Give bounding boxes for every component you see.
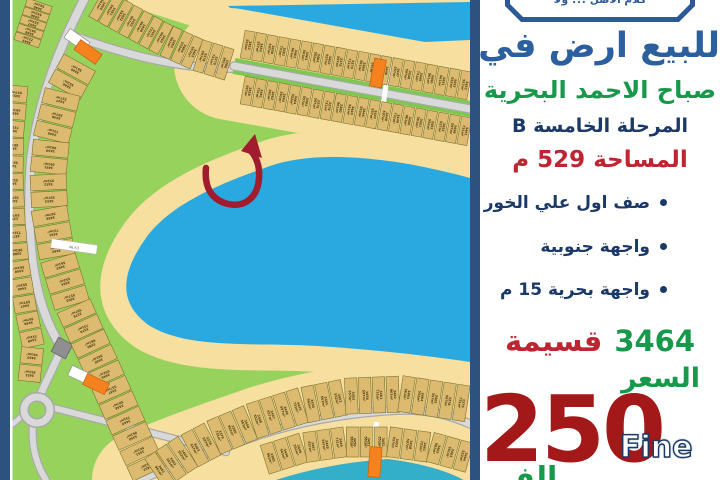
bullet-icon — [660, 199, 667, 206]
bullet-icon — [660, 286, 667, 293]
area-label: المساحة 529 م — [480, 147, 720, 173]
details-panel: كلام الاصل !!! ولا للبيع ارض في صباح الا… — [480, 0, 720, 480]
subdivision-map: 3440561m²3446552m²3447557m²3448597m²3449… — [0, 0, 480, 480]
plot-number-line: قسيمة 3464 — [480, 324, 720, 358]
bullet-icon — [660, 243, 667, 250]
price-unit: الف — [500, 461, 557, 480]
advert-root: 3440561m²3446552m²3447557m²3448597m²3449… — [0, 0, 720, 480]
agency-badge-inner: كلام الاصل !!! ولا — [510, 0, 690, 17]
phase-label: المرحلة الخامسة B — [480, 115, 720, 137]
frame-left — [0, 0, 10, 480]
highlighted-plot-south — [368, 447, 382, 478]
feature-south-facing: واجهة جنوبية — [540, 237, 650, 257]
agency-slogan: كلام الاصل !!! ولا — [510, 0, 690, 6]
feature-text: واجهة بحرية 15 م — [500, 280, 650, 300]
map-canvas: 3440561m²3446552m²3447557m²3448597m²3449… — [0, 0, 480, 480]
plot-number-label: قسيمة — [505, 324, 602, 358]
svg-text:3450961m²: 3450961m² — [44, 145, 57, 154]
frame-divider — [470, 0, 480, 480]
plot-number-value: 3464 — [614, 324, 695, 358]
feature-sea-frontage: واجهة بحرية 15 م — [500, 280, 650, 300]
project-name: صباح الاحمد البحرية — [480, 76, 720, 104]
svg-text:3451561m²: 3451561m² — [42, 161, 55, 170]
svg-text:3451561m²: 3451561m² — [23, 369, 36, 378]
feature-first-row: صف اول علي الخور — [484, 193, 650, 213]
agency-badge: كلام الاصل !!! ولا — [505, 0, 695, 22]
svg-text:3450961m²: 3450961m² — [25, 352, 38, 361]
listing-title: للبيع ارض في — [480, 26, 720, 66]
feature-text: واجهة جنوبية — [540, 237, 650, 257]
watermark-text: Fine — [620, 430, 692, 465]
feature-text: صف اول علي الخور — [484, 193, 650, 213]
frame-left-inner — [10, 0, 13, 480]
